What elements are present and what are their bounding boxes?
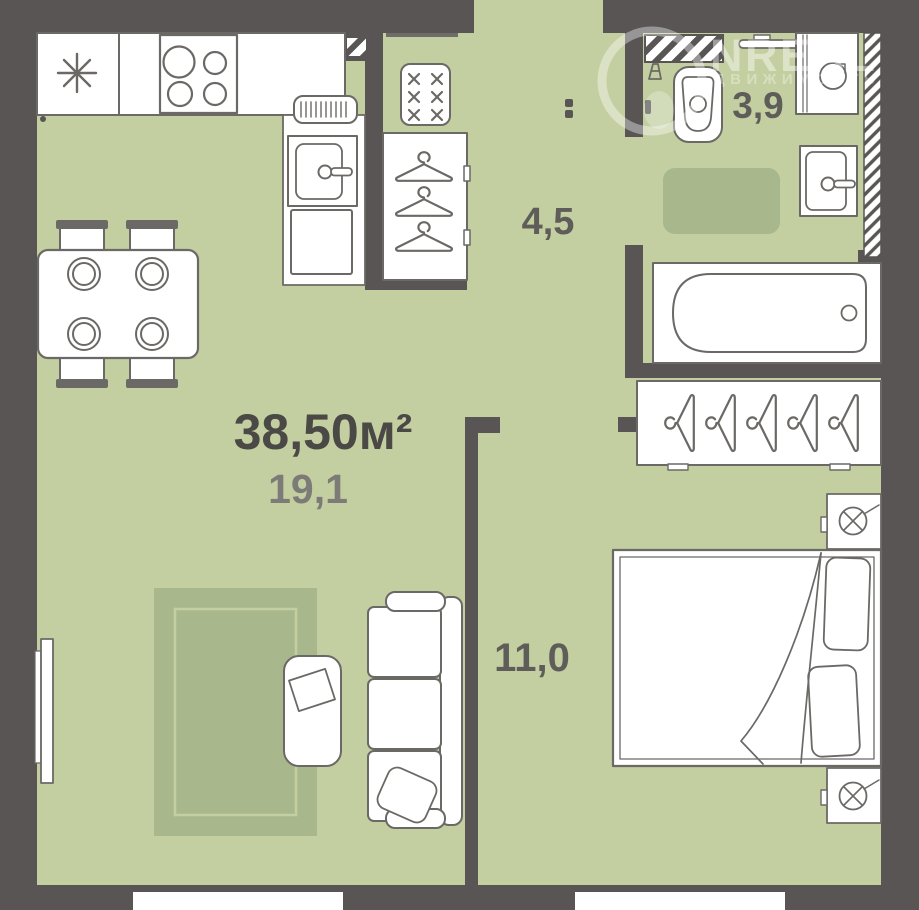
total-area-label: 38,50м² — [234, 404, 413, 460]
wall-partition-living-bedroom — [465, 417, 478, 885]
nightstand — [821, 768, 881, 823]
wall-under-bathtub — [625, 363, 919, 378]
faucet-handle — [331, 168, 352, 176]
door-stop-dot — [40, 116, 46, 122]
wall-right — [881, 0, 919, 910]
faucet-icon — [319, 166, 332, 179]
watermark-logo-mark — [644, 91, 674, 129]
hall-wardrobe — [383, 133, 470, 280]
dining-table — [38, 250, 198, 358]
wardrobe-handle — [464, 166, 470, 181]
hallway-area-label: 4,5 — [522, 201, 575, 243]
sofa — [368, 592, 462, 828]
entry-door-handle-icon — [565, 110, 573, 118]
window-bedroom — [575, 892, 785, 910]
wall-bath-left-lower — [625, 245, 643, 365]
fridge — [58, 54, 96, 92]
tv — [35, 639, 53, 783]
nightstand — [821, 494, 881, 549]
wardrobe-foot — [668, 464, 688, 470]
living-area-label: 19,1 — [268, 466, 348, 512]
wall-bedroom-door-stub — [618, 417, 637, 432]
kitchen-sink — [288, 136, 357, 206]
sofa-armrest — [386, 592, 445, 611]
drying-rack — [294, 96, 357, 123]
sofa-cushion — [368, 607, 441, 677]
wardrobe-foot — [830, 464, 850, 470]
wall-partition-stub — [465, 417, 500, 433]
chair — [126, 354, 178, 388]
pillow — [823, 557, 870, 650]
snowflake-icon — [58, 54, 96, 92]
entry-niche-line — [386, 33, 458, 37]
wall-top-left — [0, 0, 474, 33]
bathroom-area-label: 3,9 — [732, 85, 783, 126]
faucet-icon — [822, 178, 835, 191]
shoe-cabinet — [401, 64, 450, 125]
bath-sink — [800, 146, 857, 216]
bedroom-area-label: 11,0 — [494, 636, 570, 680]
wall-kitchen-hall — [365, 33, 383, 290]
stove — [160, 35, 237, 113]
window-living — [133, 892, 343, 910]
sofa-cushion — [368, 679, 441, 749]
drain-icon — [842, 306, 857, 321]
coffee-table — [284, 656, 341, 766]
floor-plan-image: 38,50м² 19,1 4,5 3,9 11,0 NREAL ДВИЖИМОС… — [0, 0, 919, 910]
kitchen-cabinet — [291, 210, 352, 274]
bathtub — [653, 263, 881, 363]
bed — [613, 550, 881, 766]
kitchen-vent-shaft — [346, 37, 367, 57]
floor-plan-canvas: 38,50м² 19,1 4,5 3,9 11,0 NREAL ДВИЖИМОС… — [0, 0, 919, 910]
sofa-backrest — [440, 597, 462, 825]
faucet-handle — [834, 181, 855, 188]
entry-door-handle-icon — [565, 99, 573, 107]
wall-left — [0, 0, 37, 910]
watermark-subtitle: ДВИЖИМОСТЬ — [714, 71, 880, 88]
pillow — [808, 665, 861, 757]
wardrobe-handle — [464, 230, 470, 245]
chair — [56, 354, 108, 388]
bedroom-wardrobe — [637, 381, 881, 470]
bath-mat — [663, 168, 780, 234]
